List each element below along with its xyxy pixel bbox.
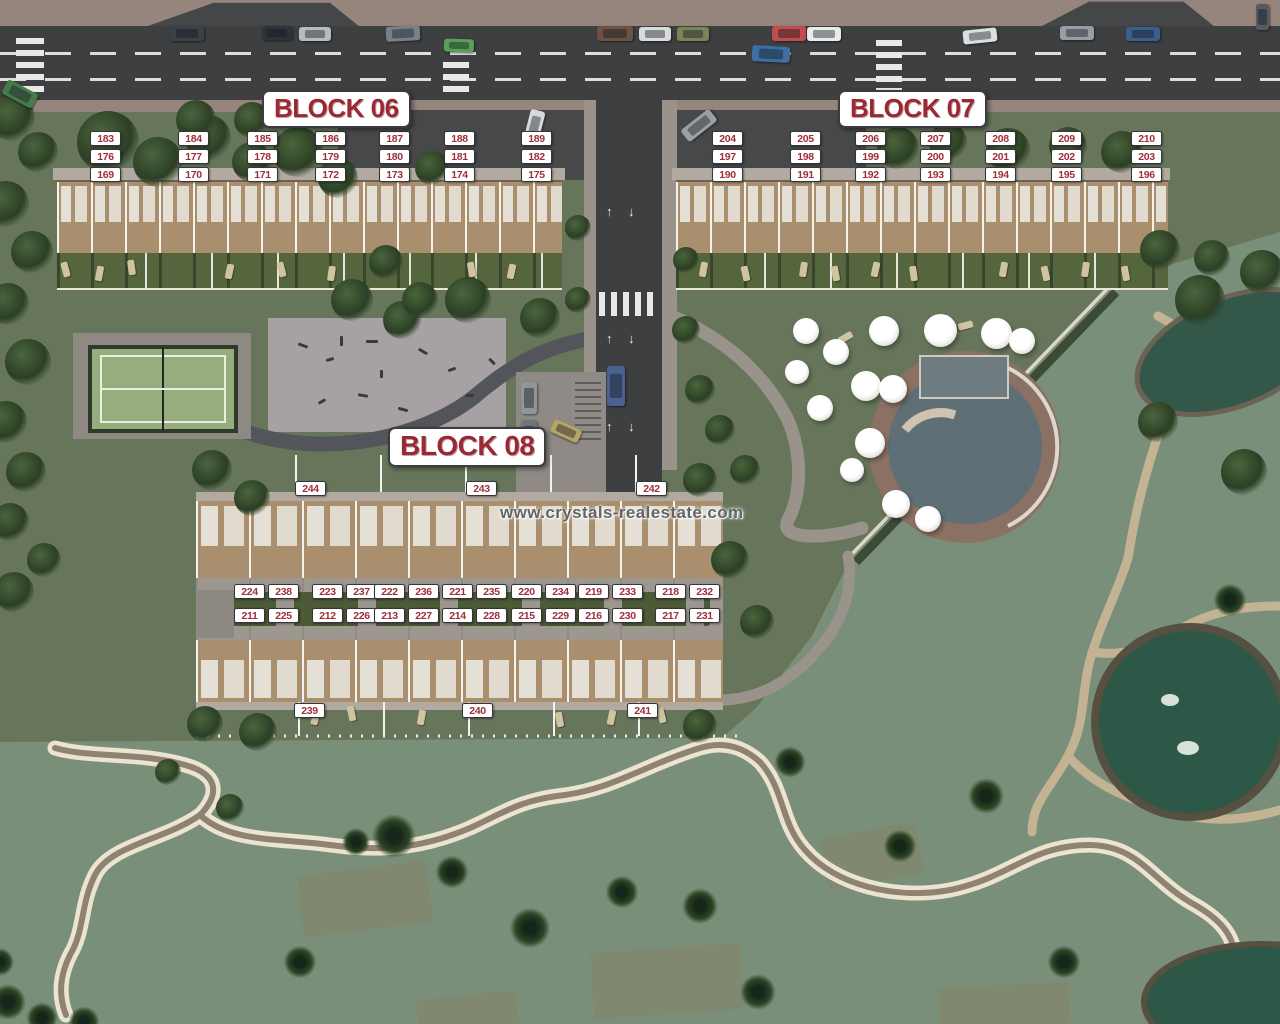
- unit-label-194[interactable]: 194: [985, 167, 1016, 182]
- tree-icon: [192, 450, 232, 490]
- unit-label-174[interactable]: 174: [444, 167, 475, 182]
- site-plan: ↑ ↓ ↑ ↓ ↑ ↓ BLOCK 06 BLOCK 07 BLOCK 08 1…: [0, 0, 1280, 1024]
- car: [299, 27, 331, 41]
- unit-label-196[interactable]: 196: [1131, 167, 1162, 182]
- unit-label-201[interactable]: 201: [985, 149, 1016, 164]
- unit-label-243[interactable]: 243: [466, 481, 497, 496]
- unit-label-188[interactable]: 188: [444, 131, 475, 146]
- umbrella-icon: [807, 395, 833, 421]
- palm-tree-icon: [677, 883, 723, 929]
- tree-icon: [565, 287, 591, 313]
- umbrella-icon: [855, 428, 885, 458]
- unit-label-186[interactable]: 186: [315, 131, 346, 146]
- unit-label-171[interactable]: 171: [247, 167, 278, 182]
- palm-tree-icon: [431, 851, 473, 893]
- unit-label-230[interactable]: 230: [612, 608, 643, 623]
- entrance-sidewalk: [662, 100, 677, 470]
- tree-icon: [705, 415, 735, 445]
- tree-icon: [1140, 230, 1180, 270]
- umbrella-icon: [981, 318, 1012, 349]
- unit-label-195[interactable]: 195: [1051, 167, 1082, 182]
- car: [521, 382, 537, 414]
- unit-label-180[interactable]: 180: [379, 149, 410, 164]
- tree-icon: [331, 279, 373, 321]
- unit-label-178[interactable]: 178: [247, 149, 278, 164]
- crosswalk: [876, 40, 902, 96]
- road-arrow-down: ↓: [628, 420, 635, 433]
- unit-label-213[interactable]: 213: [374, 608, 405, 623]
- tree-icon: [683, 709, 717, 743]
- unit-label-200[interactable]: 200: [920, 149, 951, 164]
- car: [262, 26, 292, 40]
- unit-label-210[interactable]: 210: [1131, 131, 1162, 146]
- lake: [1095, 627, 1280, 817]
- unit-label-241[interactable]: 241: [627, 703, 658, 718]
- crosswalk: [443, 62, 469, 96]
- unit-label-190[interactable]: 190: [712, 167, 743, 182]
- unit-label-236[interactable]: 236: [408, 584, 439, 599]
- unit-label-169[interactable]: 169: [90, 167, 121, 182]
- crosswalk: [599, 292, 659, 316]
- tree-icon: [730, 455, 760, 485]
- unit-label-197[interactable]: 197: [712, 149, 743, 164]
- palm-tree-icon: [279, 941, 321, 983]
- unit-label-193[interactable]: 193: [920, 167, 951, 182]
- unit-label-214[interactable]: 214: [442, 608, 473, 623]
- unit-label-231[interactable]: 231: [689, 608, 720, 623]
- tree-icon: [445, 277, 491, 323]
- car: [1256, 4, 1269, 30]
- car: [677, 27, 709, 41]
- unit-label-211[interactable]: 211: [234, 608, 265, 623]
- tree-icon: [155, 759, 181, 785]
- unit-label-235[interactable]: 235: [476, 584, 507, 599]
- umbrella-icon: [882, 490, 910, 518]
- unit-label-218[interactable]: 218: [655, 584, 686, 599]
- block06-rooms: [57, 186, 562, 222]
- palm-tree-icon: [770, 742, 810, 782]
- umbrella-icon: [924, 314, 957, 347]
- tree-icon: [11, 231, 53, 273]
- tree-icon: [520, 298, 560, 338]
- unit-label-242[interactable]: 242: [636, 481, 667, 496]
- fountain-splash: [1177, 741, 1199, 755]
- tree-icon: [133, 137, 183, 187]
- unit-label-226[interactable]: 226: [346, 608, 377, 623]
- palm-tree-icon: [338, 824, 374, 860]
- tree-icon: [27, 543, 61, 577]
- unit-label-222[interactable]: 222: [374, 584, 405, 599]
- tree-icon: [1240, 250, 1280, 294]
- palm-tree-icon: [366, 808, 422, 864]
- car: [752, 45, 791, 63]
- tree-icon: [673, 247, 699, 273]
- car: [772, 26, 806, 41]
- car: [1060, 26, 1094, 40]
- unit-label-170[interactable]: 170: [178, 167, 209, 182]
- tree-icon: [5, 339, 51, 385]
- road-arrow-up: ↑: [606, 420, 613, 433]
- unit-label-239[interactable]: 239: [294, 703, 325, 718]
- unit-label-199[interactable]: 199: [855, 149, 886, 164]
- unit-label-184[interactable]: 184: [178, 131, 209, 146]
- unit-label-229[interactable]: 229: [545, 608, 576, 623]
- tree-icon: [1138, 402, 1178, 442]
- palm-tree-icon: [735, 969, 781, 1015]
- unit-label-215[interactable]: 215: [511, 608, 542, 623]
- unit-label-209[interactable]: 209: [1051, 131, 1082, 146]
- unit-label-240[interactable]: 240: [462, 703, 493, 718]
- umbrella-icon: [869, 316, 899, 346]
- tree-icon: [711, 541, 749, 579]
- unit-label-173[interactable]: 173: [379, 167, 410, 182]
- unit-label-176[interactable]: 176: [90, 149, 121, 164]
- unit-label-206[interactable]: 206: [855, 131, 886, 146]
- tree-icon: [369, 245, 403, 279]
- unit-label-238[interactable]: 238: [268, 584, 299, 599]
- unit-label-177[interactable]: 177: [178, 149, 209, 164]
- tree-icon: [18, 132, 58, 172]
- playground-plaza: [268, 318, 506, 432]
- palm-tree-icon: [504, 902, 556, 954]
- unit-label-208[interactable]: 208: [985, 131, 1016, 146]
- tree-icon: [187, 706, 223, 742]
- palm-tree-icon: [963, 773, 1009, 819]
- unit-label-182[interactable]: 182: [521, 149, 552, 164]
- tree-icon: [1221, 449, 1267, 495]
- lane-line: [0, 52, 1280, 55]
- court-service-line: [102, 388, 224, 390]
- block07-rooms: [676, 186, 1168, 222]
- unit-label-189[interactable]: 189: [521, 131, 552, 146]
- block07-garden-dividers: [700, 253, 1158, 289]
- tree-icon: [216, 794, 244, 822]
- palm-tree-icon: [1209, 579, 1251, 621]
- play-equipment: [466, 394, 474, 397]
- umbrella-icon: [915, 506, 941, 532]
- road-arrow-down: ↓: [628, 205, 635, 218]
- umbrella-icon: [840, 458, 864, 482]
- unit-label-234[interactable]: 234: [545, 584, 576, 599]
- unit-label-198[interactable]: 198: [790, 149, 821, 164]
- car: [1126, 27, 1160, 41]
- tree-icon: [234, 480, 270, 516]
- unit-label-175[interactable]: 175: [521, 167, 552, 182]
- umbrella-icon: [823, 339, 849, 365]
- block08-rooms-south: [196, 660, 723, 698]
- unit-label-204[interactable]: 204: [712, 131, 743, 146]
- umbrella-icon: [1009, 328, 1035, 354]
- tree-icon: [6, 452, 46, 492]
- umbrella-icon: [785, 360, 809, 384]
- unit-label-212[interactable]: 212: [312, 608, 343, 623]
- block-06-label: BLOCK 06: [262, 90, 411, 128]
- unit-label-227[interactable]: 227: [408, 608, 439, 623]
- tree-icon: [685, 375, 715, 405]
- unit-label-225[interactable]: 225: [268, 608, 299, 623]
- palm-tree-icon: [601, 871, 643, 913]
- tree-icon: [1194, 240, 1230, 276]
- car: [807, 27, 841, 41]
- road-arrow-up: ↑: [606, 332, 613, 345]
- block08-pergola: [198, 590, 234, 638]
- play-equipment: [366, 340, 378, 343]
- unit-label-219[interactable]: 219: [578, 584, 609, 599]
- palm-tree-icon: [879, 825, 921, 867]
- block-07-label: BLOCK 07: [838, 90, 987, 128]
- unit-label-185[interactable]: 185: [247, 131, 278, 146]
- car: [597, 26, 633, 41]
- unit-label-228[interactable]: 228: [476, 608, 507, 623]
- unit-label-179[interactable]: 179: [315, 149, 346, 164]
- car: [639, 27, 671, 41]
- unit-label-217[interactable]: 217: [655, 608, 686, 623]
- unit-label-183[interactable]: 183: [90, 131, 121, 146]
- unit-label-202[interactable]: 202: [1051, 149, 1082, 164]
- unit-label-233[interactable]: 233: [612, 584, 643, 599]
- watermark: www.crystals-realestate.com: [500, 503, 744, 523]
- unit-label-181[interactable]: 181: [444, 149, 475, 164]
- fountain-splash: [1161, 694, 1179, 706]
- tree-icon: [565, 215, 591, 241]
- tree-icon: [740, 605, 774, 639]
- block-08-label: BLOCK 08: [388, 427, 546, 467]
- unit-label-192[interactable]: 192: [855, 167, 886, 182]
- unit-label-221[interactable]: 221: [442, 584, 473, 599]
- unit-label-237[interactable]: 237: [346, 584, 377, 599]
- unit-label-244[interactable]: 244: [295, 481, 326, 496]
- tree-icon: [672, 316, 700, 344]
- car: [170, 26, 204, 41]
- car: [444, 38, 474, 52]
- unit-label-172[interactable]: 172: [315, 167, 346, 182]
- unit-label-224[interactable]: 224: [234, 584, 265, 599]
- car: [607, 366, 625, 406]
- unit-label-216[interactable]: 216: [578, 608, 609, 623]
- palm-tree-icon: [1043, 941, 1085, 983]
- play-equipment: [380, 370, 383, 378]
- play-equipment: [340, 336, 343, 346]
- road-arrow-up: ↑: [606, 205, 613, 218]
- unit-label-187[interactable]: 187: [379, 131, 410, 146]
- unit-label-232[interactable]: 232: [689, 584, 720, 599]
- umbrella-icon: [851, 371, 881, 401]
- tree-icon: [239, 713, 277, 751]
- unit-label-203[interactable]: 203: [1131, 149, 1162, 164]
- tree-icon: [683, 463, 717, 497]
- umbrella-icon: [879, 375, 907, 403]
- lane-line: [0, 78, 1280, 81]
- block07-fence: [676, 288, 1168, 290]
- unit-label-220[interactable]: 220: [511, 584, 542, 599]
- road-arrow-down: ↓: [628, 332, 635, 345]
- tree-icon: [402, 282, 438, 318]
- unit-label-223[interactable]: 223: [312, 584, 343, 599]
- car: [386, 25, 421, 42]
- unit-label-207[interactable]: 207: [920, 131, 951, 146]
- tree-icon: [1175, 275, 1225, 325]
- unit-label-191[interactable]: 191: [790, 167, 821, 182]
- unit-label-205[interactable]: 205: [790, 131, 821, 146]
- umbrella-icon: [793, 318, 819, 344]
